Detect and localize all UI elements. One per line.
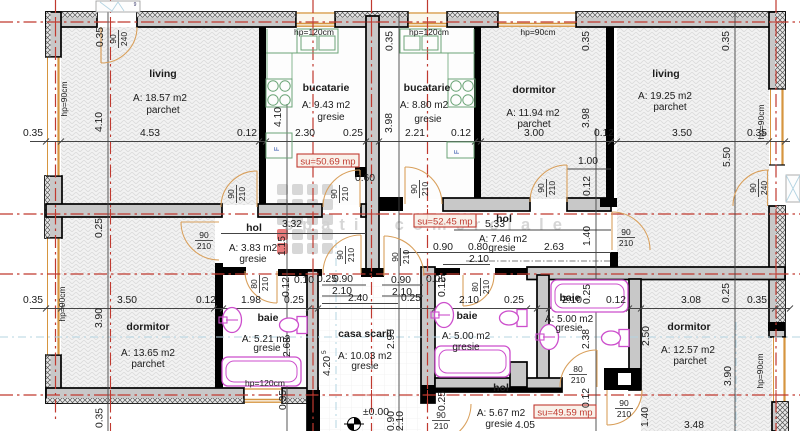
svg-text:su=50.69 mp: su=50.69 mp [300,157,355,168]
svg-text:1.40: 1.40 [640,407,651,427]
svg-text:gresie: gresie [488,243,516,254]
svg-text:0.35: 0.35 [581,31,592,51]
svg-text:0.10: 0.10 [294,275,314,286]
svg-text:A: 12.57 m2: A: 12.57 m2 [661,345,715,356]
svg-text:5.50: 5.50 [722,147,733,167]
svg-text:2.30: 2.30 [295,128,315,139]
svg-text:210: 210 [617,409,631,419]
svg-text:240: 240 [759,181,769,195]
svg-text:210: 210 [197,241,211,251]
svg-text:A: 3.83 m2: A: 3.83 m2 [229,243,278,254]
svg-text:0.35: 0.35 [23,128,43,139]
svg-text:0.12: 0.12 [581,388,592,408]
svg-text:0.25: 0.25 [582,284,593,304]
svg-text:2.40: 2.40 [348,293,368,304]
svg-text:F: F [274,147,281,151]
svg-text:hp=120cm: hp=120cm [409,27,449,37]
svg-text:casa scarii: casa scarii [338,328,392,340]
svg-text:2.10: 2.10 [459,295,479,306]
svg-text:80: 80 [249,279,259,289]
svg-text:0.25: 0.25 [437,391,448,411]
svg-text:9: 9 [134,2,137,8]
svg-text:210: 210 [346,248,356,262]
svg-text:4.20: 4.20 [322,356,333,376]
svg-text:0.35: 0.35 [278,390,289,410]
svg-text:dormitor: dormitor [667,321,710,333]
svg-text:A: 19.25 m2: A: 19.25 m2 [638,91,692,102]
svg-text:3.32: 3.32 [282,219,302,230]
svg-text:210: 210 [260,277,270,291]
svg-text:0.35: 0.35 [23,295,43,306]
svg-text:90: 90 [335,250,345,260]
svg-text:0.80: 0.80 [468,242,488,253]
svg-text:90: 90 [621,227,631,237]
svg-text:3.98: 3.98 [581,108,592,128]
svg-text:living: living [149,68,176,80]
svg-text:0.12: 0.12 [451,128,471,139]
svg-text:210: 210 [401,250,411,264]
svg-text:0.35: 0.35 [95,408,106,428]
svg-text:0.12: 0.12 [582,176,593,196]
svg-text:0.12: 0.12 [196,295,216,306]
svg-text:0.90: 0.90 [433,242,453,253]
svg-text:90: 90 [390,252,400,262]
svg-text:A: 9.43 m2: A: 9.43 m2 [302,100,351,111]
svg-text:0.12: 0.12 [281,277,292,297]
svg-text:3.50: 3.50 [672,128,692,139]
svg-text:dormitor: dormitor [512,84,555,96]
svg-text:210: 210 [619,238,633,248]
svg-text:0.35: 0.35 [385,31,396,51]
svg-text:gresie: gresie [485,419,513,430]
svg-text:hp=120cm: hp=120cm [245,378,285,388]
svg-text:90: 90 [436,410,446,420]
svg-text:bucatarie: bucatarie [303,82,350,94]
svg-text:gresie: gresie [253,343,281,354]
svg-text:gresie: gresie [452,342,480,353]
svg-text:210: 210 [481,280,491,294]
svg-text:hp=120cm: hp=120cm [294,27,334,37]
svg-text:90: 90 [619,398,629,408]
svg-text:hol: hol [246,222,262,234]
svg-text:90: 90 [409,184,419,194]
svg-text:parchet: parchet [146,105,180,116]
svg-text:1.98: 1.98 [241,295,261,306]
svg-text:210: 210 [340,187,350,201]
svg-text:gresie: gresie [239,254,267,265]
svg-text:0.35: 0.35 [95,27,106,47]
svg-text:0.12: 0.12 [237,128,257,139]
svg-text:2.50: 2.50 [641,326,652,346]
svg-text:A: 11.94 m2: A: 11.94 m2 [506,108,560,119]
svg-text:F: F [454,150,461,154]
svg-text:3.50: 3.50 [117,295,137,306]
svg-text:parchet: parchet [673,356,707,367]
svg-text:A: 13.65 m2: A: 13.65 m2 [121,348,175,359]
svg-text:0.90: 0.90 [391,275,411,286]
svg-text:0.12: 0.12 [437,277,448,297]
svg-text:0.25: 0.25 [721,283,732,303]
svg-text:90: 90 [226,189,236,199]
svg-text:210: 210 [547,181,557,195]
svg-text:0.35: 0.35 [721,31,732,51]
svg-text:0.12: 0.12 [606,295,626,306]
svg-text:gresie: gresie [351,361,379,372]
svg-text:4.05: 4.05 [515,420,535,431]
svg-text:hp=90cm: hp=90cm [520,27,555,37]
svg-text:bucatarie: bucatarie [404,82,451,94]
svg-text:4.10: 4.10 [94,112,105,132]
svg-text:2.63: 2.63 [544,242,564,253]
svg-text:2.21: 2.21 [405,128,425,139]
svg-text:parchet: parchet [131,359,165,370]
svg-text:su=52.45 mp: su=52.45 mp [417,217,472,228]
svg-text:hp=90cm: hp=90cm [755,353,765,388]
svg-text:2.10: 2.10 [395,411,406,431]
svg-text:0.35: 0.35 [747,295,767,306]
svg-text:dormitor: dormitor [126,321,169,333]
svg-text:2.10: 2.10 [469,254,489,265]
svg-text:2.63: 2.63 [282,337,293,357]
svg-text:1.00: 1.00 [578,156,598,167]
svg-text:2.10: 2.10 [562,295,582,306]
svg-text:0.25: 0.25 [94,218,105,238]
svg-text:hp=90cm: hp=90cm [756,104,766,139]
svg-text:0.12: 0.12 [594,128,614,139]
svg-text:5.33: 5.33 [485,219,505,230]
svg-text:90: 90 [536,183,546,193]
svg-text:4.10: 4.10 [273,107,284,127]
svg-text:90: 90 [199,230,209,240]
svg-text:90: 90 [108,34,118,44]
svg-text:3.00: 3.00 [524,128,544,139]
svg-text:A: 18.57 m2: A: 18.57 m2 [133,93,187,104]
svg-text:A: 8.80 m2: A: 8.80 m2 [400,100,449,111]
svg-text:living: living [652,68,679,80]
svg-text:0.25: 0.25 [504,295,524,306]
svg-text:gresie: gresie [317,112,345,123]
svg-text:2.38: 2.38 [581,329,592,349]
svg-text:210: 210 [571,375,585,385]
svg-text:90: 90 [329,189,339,199]
svg-text:210: 210 [434,421,448,431]
svg-text:240: 240 [119,32,129,46]
svg-text:0.25: 0.25 [401,293,421,304]
svg-text:4.53: 4.53 [140,128,160,139]
svg-text:hol: hol [493,382,509,394]
svg-text:80: 80 [573,364,583,374]
svg-text:3.98: 3.98 [384,113,395,133]
svg-text:3.90: 3.90 [723,366,734,386]
svg-text:5: 5 [321,350,328,354]
svg-text:210: 210 [420,182,430,196]
svg-text:baie: baie [456,310,477,322]
svg-text:90: 90 [748,183,758,193]
svg-text:A: 5.67 m2: A: 5.67 m2 [477,408,526,419]
svg-text:0.25: 0.25 [317,274,337,285]
svg-text:gresie: gresie [555,323,583,334]
svg-text:0.60: 0.60 [355,173,375,184]
svg-text:210: 210 [237,187,247,201]
svg-text:baie: baie [257,312,278,324]
svg-text:parchet: parchet [653,102,687,113]
svg-text:3.48: 3.48 [684,420,704,431]
svg-text:A: 5.00 m2: A: 5.00 m2 [442,331,491,342]
svg-text:gresie: gresie [414,114,442,125]
svg-text:0.25: 0.25 [343,128,363,139]
svg-text:1.15: 1.15 [277,236,288,256]
svg-text:1.40: 1.40 [582,226,593,246]
svg-text:hp=90cm: hp=90cm [59,81,69,116]
svg-text:3.90: 3.90 [94,308,105,328]
svg-text:3.08: 3.08 [681,295,701,306]
svg-text:80: 80 [470,282,480,292]
svg-text:su=49.59 mp: su=49.59 mp [537,408,592,419]
svg-text:hp=90cm: hp=90cm [57,286,67,321]
svg-text:2.93: 2.93 [386,329,397,349]
